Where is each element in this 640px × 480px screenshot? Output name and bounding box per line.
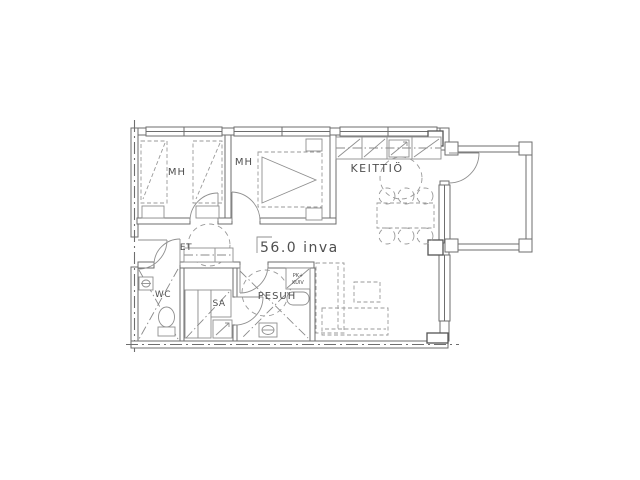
sofa-section — [316, 263, 344, 333]
column-icon — [427, 333, 448, 343]
area-label-group: 56.0 inva — [257, 237, 339, 256]
double-bed — [258, 152, 322, 207]
balcony-post — [445, 239, 458, 252]
wall-hall-south — [268, 262, 314, 268]
window-livingroom — [439, 255, 450, 321]
kitchen-fixtures — [336, 137, 441, 244]
wall-washroom-living — [310, 268, 315, 341]
bedroom2-furniture — [258, 139, 322, 220]
area-label: 56.0 inva — [260, 240, 339, 256]
livingroom-furniture — [316, 263, 388, 335]
sauna-label: SA — [212, 299, 225, 309]
wall-sauna-washroom — [233, 325, 237, 341]
bed-direction-triangle — [262, 157, 316, 203]
wall-bedroom2-kitchen — [330, 135, 336, 222]
chair — [417, 188, 433, 204]
dining-table — [377, 203, 434, 228]
coffee-table — [354, 282, 380, 302]
floorplan-canvas: PK+ KUIV MH MH KEITTIÖ ET WC SA PESUH 56… — [0, 0, 640, 480]
balcony-post — [519, 239, 532, 252]
balcony-rail-right — [526, 146, 532, 250]
bed-bench — [142, 206, 164, 218]
washroom-door — [240, 265, 268, 293]
wall-wc-sauna — [180, 268, 184, 341]
washroom-fixtures: PK+ KUIV — [240, 268, 310, 338]
toilet-bowl — [159, 307, 175, 327]
washer-dryer-label-line2: KUIV — [292, 280, 304, 286]
bedroom1-furniture — [141, 141, 222, 218]
balcony-post — [519, 142, 532, 155]
wc-fixtures — [139, 269, 178, 339]
bed-foldline — [143, 143, 165, 199]
wall-sauna-washroom — [233, 268, 237, 297]
window-bedroom1 — [146, 127, 222, 136]
washer-dryer-reservation: PK+ KUIV — [286, 268, 310, 289]
wall-bedroom-divider — [225, 135, 231, 222]
bed-bench — [196, 206, 219, 218]
wall-bedrooms-south — [218, 218, 232, 224]
chair — [379, 228, 395, 244]
chair — [379, 188, 395, 204]
bedroom1-label: MH — [168, 167, 186, 178]
wall-bedrooms-south — [260, 218, 336, 224]
column-icon — [428, 240, 443, 255]
washroom-label: PESUH — [258, 291, 297, 302]
kitchen-label: KEITTIÖ — [350, 162, 403, 175]
nightstand — [306, 139, 322, 151]
sauna-fixtures — [185, 290, 232, 338]
washer-dryer-label-line1: PK+ — [293, 273, 303, 279]
labels: MH MH KEITTIÖ ET WC SA PESUH 56.0 inva — [155, 157, 404, 309]
balcony-door — [449, 153, 479, 183]
window-dining — [439, 185, 450, 243]
wall-hall-south — [138, 262, 154, 268]
window-kitchen — [340, 127, 437, 136]
wall-bedrooms-south — [137, 218, 190, 224]
wc-label: WC — [155, 290, 171, 300]
bed-foldline — [196, 143, 220, 199]
floorplan-drawing: PK+ KUIV MH MH KEITTIÖ ET WC SA PESUH 56… — [0, 0, 640, 480]
sofa-section — [322, 308, 388, 335]
toilet-tank — [158, 327, 175, 336]
washbasin — [259, 323, 277, 337]
window-bedroom2 — [234, 127, 330, 136]
chair — [398, 228, 414, 244]
bedroom2-door — [232, 192, 260, 221]
sauna-bench — [185, 290, 198, 338]
wall-hall-south — [180, 262, 240, 268]
hallway-label: ET — [180, 243, 192, 253]
bedroom2-label: MH — [235, 157, 253, 168]
nightstand — [306, 208, 322, 220]
balcony — [445, 142, 532, 252]
